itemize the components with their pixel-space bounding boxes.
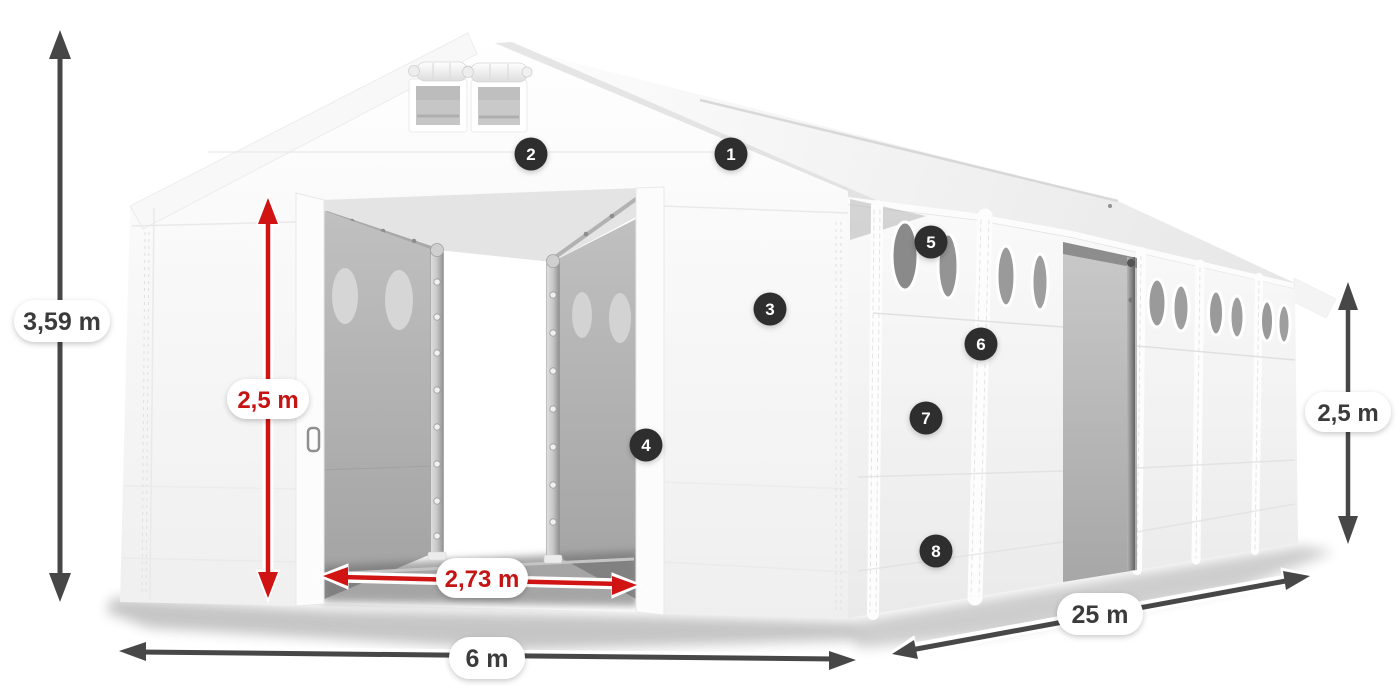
vent-window-right <box>463 63 533 132</box>
side-window-oval <box>1173 285 1189 331</box>
tent-diagram-canvas: 1 2 3 4 5 6 7 8 <box>0 0 1400 700</box>
badge-number: 3 <box>765 300 774 319</box>
front-opening-interior <box>322 188 638 612</box>
interior-right-panel <box>552 218 638 600</box>
interior-window-oval <box>572 292 592 338</box>
callout-badge-8[interactable]: 8 <box>920 535 953 568</box>
dimension-label-inner-height: 2,5 m <box>237 387 298 414</box>
side-window-oval <box>1032 254 1048 310</box>
door-frame-pole-right <box>544 255 562 564</box>
side-window-oval <box>1230 296 1244 338</box>
callout-badge-2[interactable]: 2 <box>515 138 548 171</box>
badge-number: 8 <box>931 542 940 561</box>
side-window-oval <box>1261 301 1274 341</box>
badge-number: 5 <box>926 233 935 252</box>
badge-number: 1 <box>726 145 735 164</box>
side-door-pole-clamp <box>1129 298 1134 303</box>
side-door-interior <box>1063 242 1137 582</box>
badge-number: 4 <box>641 436 651 455</box>
dimension-label-length: 25 m <box>1072 601 1129 629</box>
front-door-panel-right <box>636 187 664 615</box>
roll-up-cover <box>416 62 468 81</box>
badge-number: 2 <box>526 145 535 164</box>
dimension-label-width: 6 m <box>465 645 508 673</box>
side-window-oval <box>1209 291 1224 335</box>
interior-window-oval <box>332 268 358 324</box>
dimension-label-side-height: 2,5 m <box>1317 400 1378 427</box>
pole-foot <box>428 552 446 560</box>
callout-badge-7[interactable]: 7 <box>910 402 943 435</box>
callout-badge-5[interactable]: 5 <box>915 226 948 259</box>
back-gable-corner <box>1294 278 1336 318</box>
interior-window-oval <box>385 270 413 330</box>
side-window-oval <box>997 246 1015 306</box>
dimension-side-height: 2,5 m <box>1305 278 1391 548</box>
dimension-width: 6 m <box>114 637 861 679</box>
dimension-label-total-height: 3,59 m <box>23 308 101 336</box>
side-window-oval <box>1148 279 1166 327</box>
dimension-label-entrance-width: 2,73 m <box>445 566 520 593</box>
roll-up-cover <box>470 63 528 82</box>
side-door-pole <box>1127 257 1135 570</box>
dimension-total-height: 3,59 m <box>14 26 110 606</box>
pole-foot <box>544 555 562 563</box>
callout-badge-3[interactable]: 3 <box>754 293 787 326</box>
badge-number: 6 <box>976 335 985 354</box>
side-door-opening <box>1063 242 1137 582</box>
side-window-oval <box>892 222 918 290</box>
badge-number: 7 <box>921 409 930 428</box>
interior-window-oval <box>609 293 631 343</box>
callout-badge-4[interactable]: 4 <box>630 429 663 462</box>
side-door-pole-clamp <box>1127 259 1135 267</box>
interior-left-panel <box>322 210 436 600</box>
callout-badge-6[interactable]: 6 <box>965 328 998 361</box>
tent-illustration: 1 2 3 4 5 6 7 8 <box>0 0 1400 700</box>
door-frame-pole-left <box>428 244 446 561</box>
side-window-oval <box>1278 305 1290 343</box>
ridge-fitting <box>1108 204 1112 208</box>
callout-badge-1[interactable]: 1 <box>715 138 748 171</box>
